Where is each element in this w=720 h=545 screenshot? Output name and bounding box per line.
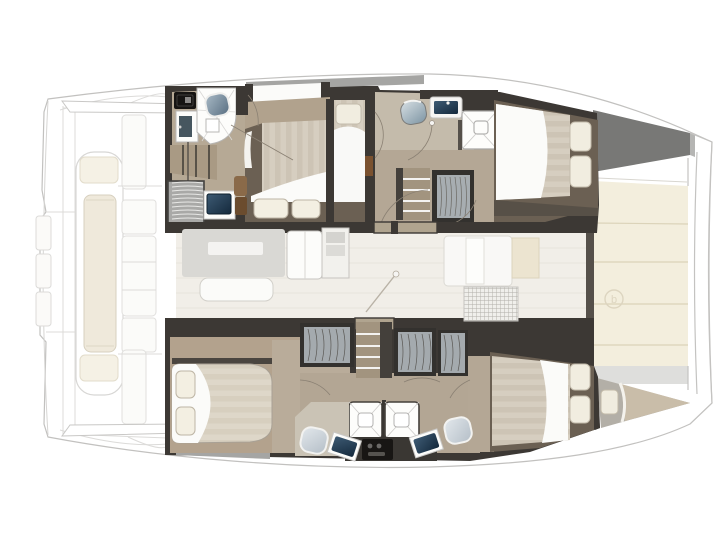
- svg-text:b: b: [611, 294, 617, 306]
